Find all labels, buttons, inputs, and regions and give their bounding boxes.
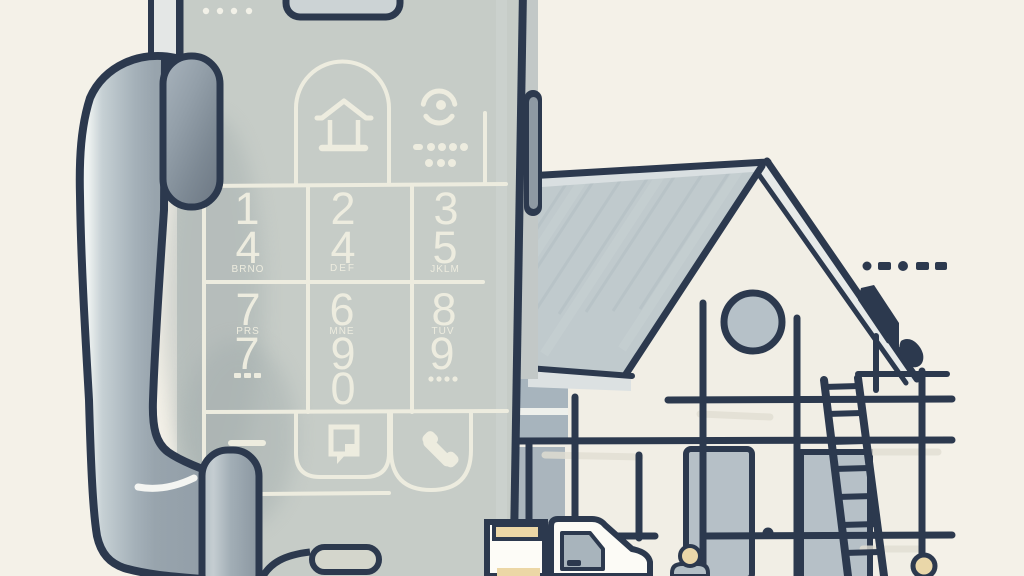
svg-text:DEF: DEF bbox=[330, 263, 356, 274]
svg-text:7: 7 bbox=[234, 328, 259, 379]
svg-text:JKLM: JKLM bbox=[430, 264, 460, 275]
svg-text:BRNO: BRNO bbox=[232, 264, 265, 275]
svg-text:9: 9 bbox=[429, 328, 454, 379]
svg-text:0: 0 bbox=[330, 363, 355, 414]
